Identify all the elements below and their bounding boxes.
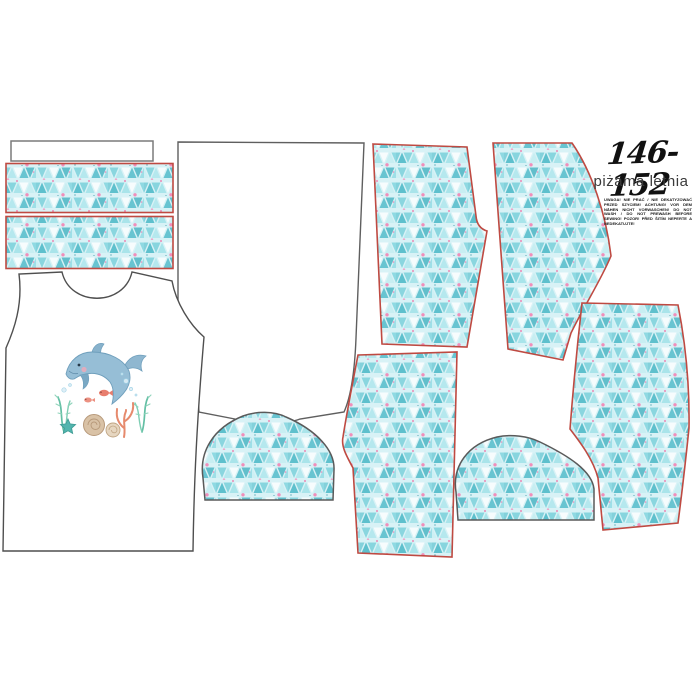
- curved-panel-piece-2: [455, 436, 594, 520]
- neckband-strip-white: [11, 141, 153, 161]
- pattern-strip-1: [6, 164, 173, 213]
- shorts-front-leg-piece-1: [373, 144, 487, 347]
- care-warning-text: UWAGA! NIE PRAĆ / NIE DEKATYZOWAĆ PRZED …: [604, 198, 692, 227]
- shorts-front-leg-piece-2: [343, 352, 457, 557]
- tank-top-back-piece: [178, 142, 364, 423]
- pajama-pattern-panel: 146-152 piżama letnia UWAGA! NIE PRAĆ / …: [0, 0, 700, 700]
- pattern-strip-2: [6, 217, 173, 269]
- pattern-layout-svg: [0, 0, 700, 700]
- product-name: piżama letnia: [578, 173, 700, 190]
- tank-top-front-piece: [3, 272, 204, 551]
- size-label: 146-152: [574, 136, 700, 204]
- curved-panel-piece-1: [202, 412, 334, 500]
